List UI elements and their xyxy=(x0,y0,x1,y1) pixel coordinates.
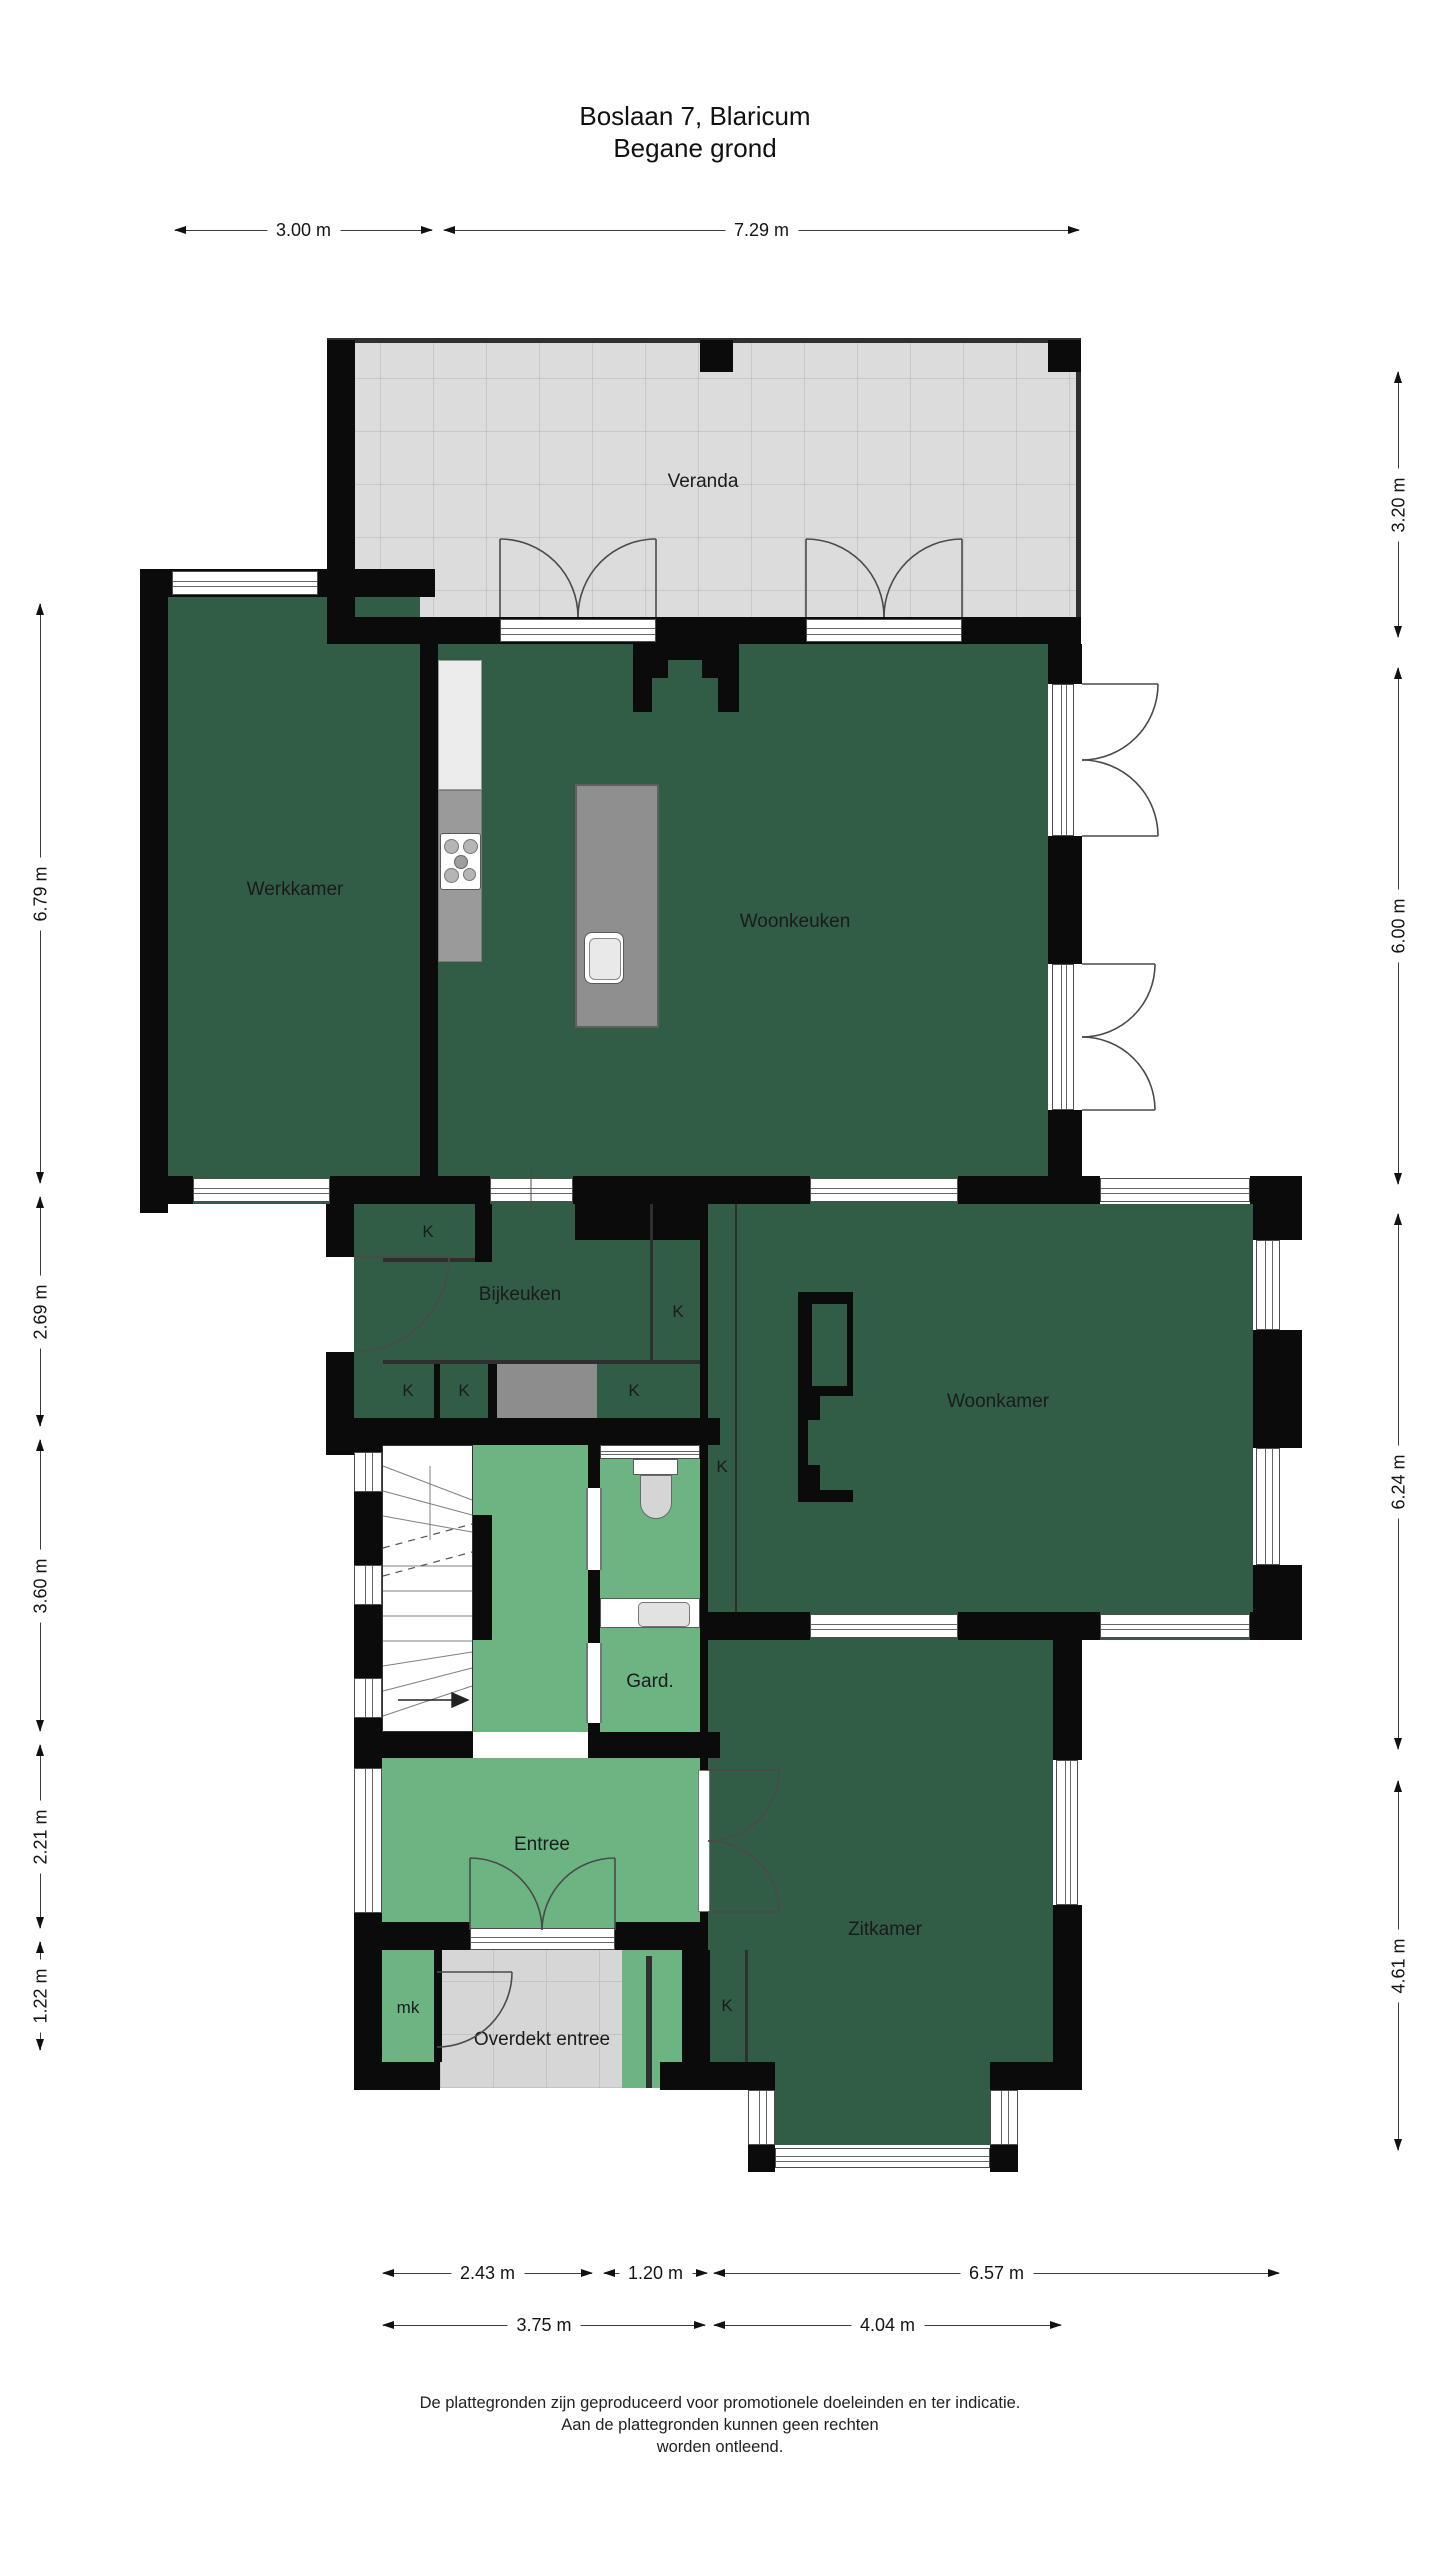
window-bay-front xyxy=(775,2148,990,2168)
window-swing-arc xyxy=(1082,684,1158,760)
window-woonkeuken-right-lower xyxy=(1052,964,1074,1110)
front-door-sill xyxy=(470,1928,615,1950)
wall-zitkamer-right-upper xyxy=(1053,1640,1082,1760)
wall-zitkamer-bottom-right xyxy=(990,2062,1082,2090)
dimension-right-3: 6.24 m xyxy=(1398,1214,1399,1749)
dimension-value: 6.79 m xyxy=(31,857,52,930)
dimension-right-2: 6.00 m xyxy=(1398,668,1399,1184)
window-entree-left xyxy=(354,1768,382,1913)
dimension-right-1: 3.20 m xyxy=(1398,372,1399,637)
porch-strip-divider xyxy=(646,1956,652,2088)
chimney-notch xyxy=(652,678,718,712)
arrowhead-icon xyxy=(1394,2139,1402,2151)
dimension-bottom2-1: 3.75 m xyxy=(383,2325,705,2326)
room-label-woonkeuken: Woonkeuken xyxy=(740,911,851,933)
dimension-value: 1.22 m xyxy=(31,1959,52,2032)
chimney-notch-step xyxy=(668,660,702,678)
dimension-bottom1-2: 1.20 m xyxy=(604,2273,707,2274)
wall-mk-bottom xyxy=(354,2062,440,2090)
wall-woonkamer-right-pier xyxy=(1253,1330,1302,1448)
window-zitkamer-right xyxy=(1056,1760,1078,1905)
window-stairs-3 xyxy=(354,1678,382,1718)
room-woonkamer-floor xyxy=(708,1204,1253,1640)
dimension-value: 3.20 m xyxy=(1389,468,1410,541)
zitkamer-door-sill xyxy=(698,1770,710,1912)
arrowhead-icon xyxy=(696,2269,708,2277)
arrowhead-icon xyxy=(1394,667,1402,679)
toilet-tank xyxy=(633,1459,678,1475)
dimension-value: 4.04 m xyxy=(851,2315,924,2336)
wall-band-segment xyxy=(1250,1612,1302,1640)
wall-veranda-left xyxy=(327,340,355,644)
arrowhead-icon xyxy=(36,1720,44,1732)
wall-band-segment xyxy=(573,1176,810,1204)
address-title: Boslaan 7, Blaricum xyxy=(0,100,1390,132)
wall-woonkeuken-right-corner-top xyxy=(1048,644,1082,684)
room-label-overdekt-entree: Overdekt entree xyxy=(474,2029,610,2051)
wall-bijkeuken-top-right-chunk xyxy=(575,1204,707,1240)
room-label-bijkeuken: Bijkeuken xyxy=(479,1284,561,1306)
arrowhead-icon xyxy=(174,226,186,234)
dimension-value: 6.24 m xyxy=(1389,1445,1410,1518)
wall-bijkeuken-left-lower xyxy=(326,1352,354,1455)
closet-label: K xyxy=(402,1381,413,1401)
floorplan-page: Boslaan 7, Blaricum Begane grond Veranda… xyxy=(0,0,1440,2560)
wall-stairs-center xyxy=(473,1515,492,1640)
arrowhead-icon xyxy=(713,2269,725,2277)
wall-band-segment xyxy=(958,1176,1100,1204)
wall-band-segment xyxy=(707,1612,810,1640)
disclaimer: De plattegronden zijn geproduceerd voor … xyxy=(0,2392,1440,2458)
dimension-left-5: 1.22 m xyxy=(40,1942,41,2050)
island-sink-basin xyxy=(589,938,621,980)
room-label-werkkamer: Werkkamer xyxy=(247,879,344,901)
dimension-value: 2.21 m xyxy=(31,1800,52,1873)
dimension-left-1: 6.79 m xyxy=(40,604,41,1183)
arrowhead-icon xyxy=(36,1744,44,1756)
arrowhead-icon xyxy=(1394,371,1402,383)
wall-front-right-of-door xyxy=(615,1922,700,1950)
stairs-area xyxy=(382,1445,473,1732)
arrowhead-icon xyxy=(1068,226,1080,234)
dimension-top-1: 3.00 m xyxy=(175,230,432,231)
window-stairs-1 xyxy=(354,1452,382,1492)
window-stairs-2 xyxy=(354,1565,382,1605)
arrowhead-icon xyxy=(36,1439,44,1451)
closet-divider-line xyxy=(383,1258,475,1262)
wall-band-under-bijkeuken xyxy=(354,1418,720,1445)
dimension-value: 1.20 m xyxy=(619,2263,692,2284)
dimension-left-3: 3.60 m xyxy=(40,1440,41,1731)
hob-burner-2 xyxy=(463,839,478,854)
closet-column-line xyxy=(650,1204,653,1360)
room-label-entree: Entree xyxy=(514,1834,570,1856)
disclaimer-line-1: De plattegronden zijn geproduceerd voor … xyxy=(0,2392,1440,2414)
bay-corner-right xyxy=(990,2145,1018,2172)
toilet-bowl xyxy=(640,1475,672,1519)
wall-zitkamer-bottom-left xyxy=(660,2062,775,2090)
arrowhead-icon xyxy=(1394,1173,1402,1185)
closet-label: K xyxy=(628,1381,639,1401)
plan-title: Boslaan 7, Blaricum Begane grond xyxy=(0,100,1390,164)
pocket-door-gard xyxy=(586,1643,602,1723)
window-woonkamer-right-upper xyxy=(1256,1240,1280,1330)
window-wc-top xyxy=(600,1445,700,1459)
dimension-top-2: 7.29 m xyxy=(444,230,1079,231)
arrowhead-icon xyxy=(36,1172,44,1184)
dimension-left-2: 2.69 m xyxy=(40,1197,41,1426)
wall-zitkamer-left-upper xyxy=(700,1640,708,1770)
room-label-garderobe: Gard. xyxy=(626,1671,674,1693)
window-woonkamer-right-lower xyxy=(1256,1448,1280,1565)
window-swing-arc xyxy=(1082,1037,1155,1110)
wall-band-segment xyxy=(958,1612,1100,1640)
wall-band-segment xyxy=(330,1176,490,1204)
window-werkkamer-bottom xyxy=(193,1178,330,1202)
dimension-value: 3.00 m xyxy=(267,220,340,241)
wall-veranda-bottom xyxy=(327,617,1081,644)
room-zitkamer-floor xyxy=(708,1640,1053,2062)
arrowhead-icon xyxy=(36,2039,44,2051)
wall-closet-k1-k2 xyxy=(434,1364,440,1418)
dimension-value: 6.00 m xyxy=(1389,889,1410,962)
closet-label: K xyxy=(716,1457,727,1477)
arrowhead-icon xyxy=(603,2269,615,2277)
dimension-value: 7.29 m xyxy=(725,220,798,241)
closet-label: K xyxy=(458,1381,469,1401)
arrowhead-icon xyxy=(382,2321,394,2329)
arrowhead-icon xyxy=(1394,1780,1402,1792)
dimension-left-4: 2.21 m xyxy=(40,1745,41,1928)
floor-subtitle: Begane grond xyxy=(0,132,1390,164)
window-passthrough-bijkeuken xyxy=(490,1178,573,1202)
appliance-block xyxy=(497,1364,597,1418)
closet-label: K xyxy=(422,1222,433,1242)
dimension-value: 6.57 m xyxy=(960,2263,1033,2284)
window-woonkamer-bottom-left xyxy=(810,1614,958,1638)
kitchen-island xyxy=(575,784,659,1028)
wall-werkkamer-left xyxy=(140,569,168,1213)
closet-strip-line-woonkamer xyxy=(735,1204,737,1612)
wall-band-segment xyxy=(140,1176,193,1204)
side-door-opening xyxy=(326,1257,354,1352)
wall-veranda-right xyxy=(1076,338,1081,644)
arrowhead-icon xyxy=(1268,2269,1280,2277)
wall-woonkamer-right-corner-top xyxy=(1253,1176,1302,1240)
window-woonkamer-top-left xyxy=(810,1178,958,1202)
room-label-meterkast: mk xyxy=(397,1998,420,2018)
veranda-post-right xyxy=(1048,340,1081,372)
wall-werkkamer-woonkeuken xyxy=(420,644,438,1204)
arrowhead-icon xyxy=(36,1941,44,1953)
wall-front-left-of-door xyxy=(354,1922,470,1950)
room-label-woonkamer: Woonkamer xyxy=(947,1391,1049,1413)
closet-strip-line-zitkamer xyxy=(745,1950,748,2062)
arrowhead-icon xyxy=(36,603,44,615)
arrowhead-icon xyxy=(1394,1213,1402,1225)
disclaimer-line-3: worden ontleend. xyxy=(0,2436,1440,2458)
veranda-post-middle xyxy=(700,340,733,372)
window-swing-arc xyxy=(1082,964,1155,1037)
arrowhead-icon xyxy=(1394,626,1402,638)
window-werkkamer-top xyxy=(172,571,318,595)
hob-burner-center xyxy=(454,855,468,869)
room-overdekt-entree-floor xyxy=(440,1950,622,2088)
arrowhead-icon xyxy=(443,226,455,234)
wall-under-stairs xyxy=(354,1732,473,1758)
dimension-bottom1-3: 6.57 m xyxy=(714,2273,1279,2274)
wall-closet-right xyxy=(475,1204,492,1262)
kitchen-counter-upper xyxy=(438,660,482,790)
wall-woonkeuken-right-pier xyxy=(1048,836,1082,964)
arrowhead-icon xyxy=(421,226,433,234)
fireplace-niche-step xyxy=(808,1420,822,1465)
dimension-value: 2.69 m xyxy=(31,1275,52,1348)
window-bay-right xyxy=(990,2090,1018,2145)
hob-burner-4 xyxy=(463,868,476,881)
room-zitkamer-bay-floor xyxy=(775,2062,990,2145)
window-woonkeuken-right-upper xyxy=(1052,684,1074,836)
window-woonkamer-top-right xyxy=(1100,1178,1250,1202)
arrowhead-icon xyxy=(382,2269,394,2277)
arrowhead-icon xyxy=(36,1196,44,1208)
dimension-bottom1-1: 2.43 m xyxy=(383,2273,592,2274)
arrowhead-icon xyxy=(694,2321,706,2329)
arrowhead-icon xyxy=(1050,2321,1062,2329)
fireplace-niche-lower xyxy=(820,1396,853,1490)
wc-sink-basin xyxy=(638,1602,690,1627)
pocket-door-wc xyxy=(586,1488,602,1570)
arrowhead-icon xyxy=(36,1415,44,1427)
fireplace-niche-upper xyxy=(812,1304,847,1386)
dimension-value: 4.61 m xyxy=(1389,1929,1410,2002)
dimension-value: 2.43 m xyxy=(451,2263,524,2284)
room-label-veranda: Veranda xyxy=(668,471,739,493)
dimension-right-4: 4.61 m xyxy=(1398,1781,1399,2150)
dimension-value: 3.60 m xyxy=(31,1549,52,1622)
veranda-door-sill-left xyxy=(500,619,656,642)
closet-label: K xyxy=(672,1302,683,1322)
window-swing-arc xyxy=(1082,760,1158,836)
room-label-zitkamer: Zitkamer xyxy=(848,1919,922,1941)
wall-closet-k2-right xyxy=(488,1364,497,1418)
arrowhead-icon xyxy=(1394,1738,1402,1750)
wall-mk-right xyxy=(434,1950,442,2062)
dimension-value: 3.75 m xyxy=(507,2315,580,2336)
wall-bijkeuken-left-upper xyxy=(326,1204,354,1257)
bay-corner-left xyxy=(748,2145,775,2172)
arrowhead-icon xyxy=(581,2269,593,2277)
hob-burner-1 xyxy=(444,839,459,854)
arrowhead-icon xyxy=(713,2321,725,2329)
window-woonkamer-bottom-right xyxy=(1100,1614,1250,1638)
wall-woonkamer-left xyxy=(700,1204,708,1640)
closet-label: K xyxy=(721,1996,732,2016)
dimension-bottom2-2: 4.04 m xyxy=(714,2325,1061,2326)
window-bay-left xyxy=(748,2090,775,2145)
arrowhead-icon xyxy=(36,1917,44,1929)
wall-zitkamer-left-lower xyxy=(700,1912,708,1950)
veranda-door-sill-right xyxy=(806,619,962,642)
disclaimer-line-2: Aan de plattegronden kunnen geen rechten xyxy=(0,2414,1440,2436)
wall-zitkamer-right-lower xyxy=(1053,1905,1082,2062)
hob-burner-3 xyxy=(444,868,459,883)
